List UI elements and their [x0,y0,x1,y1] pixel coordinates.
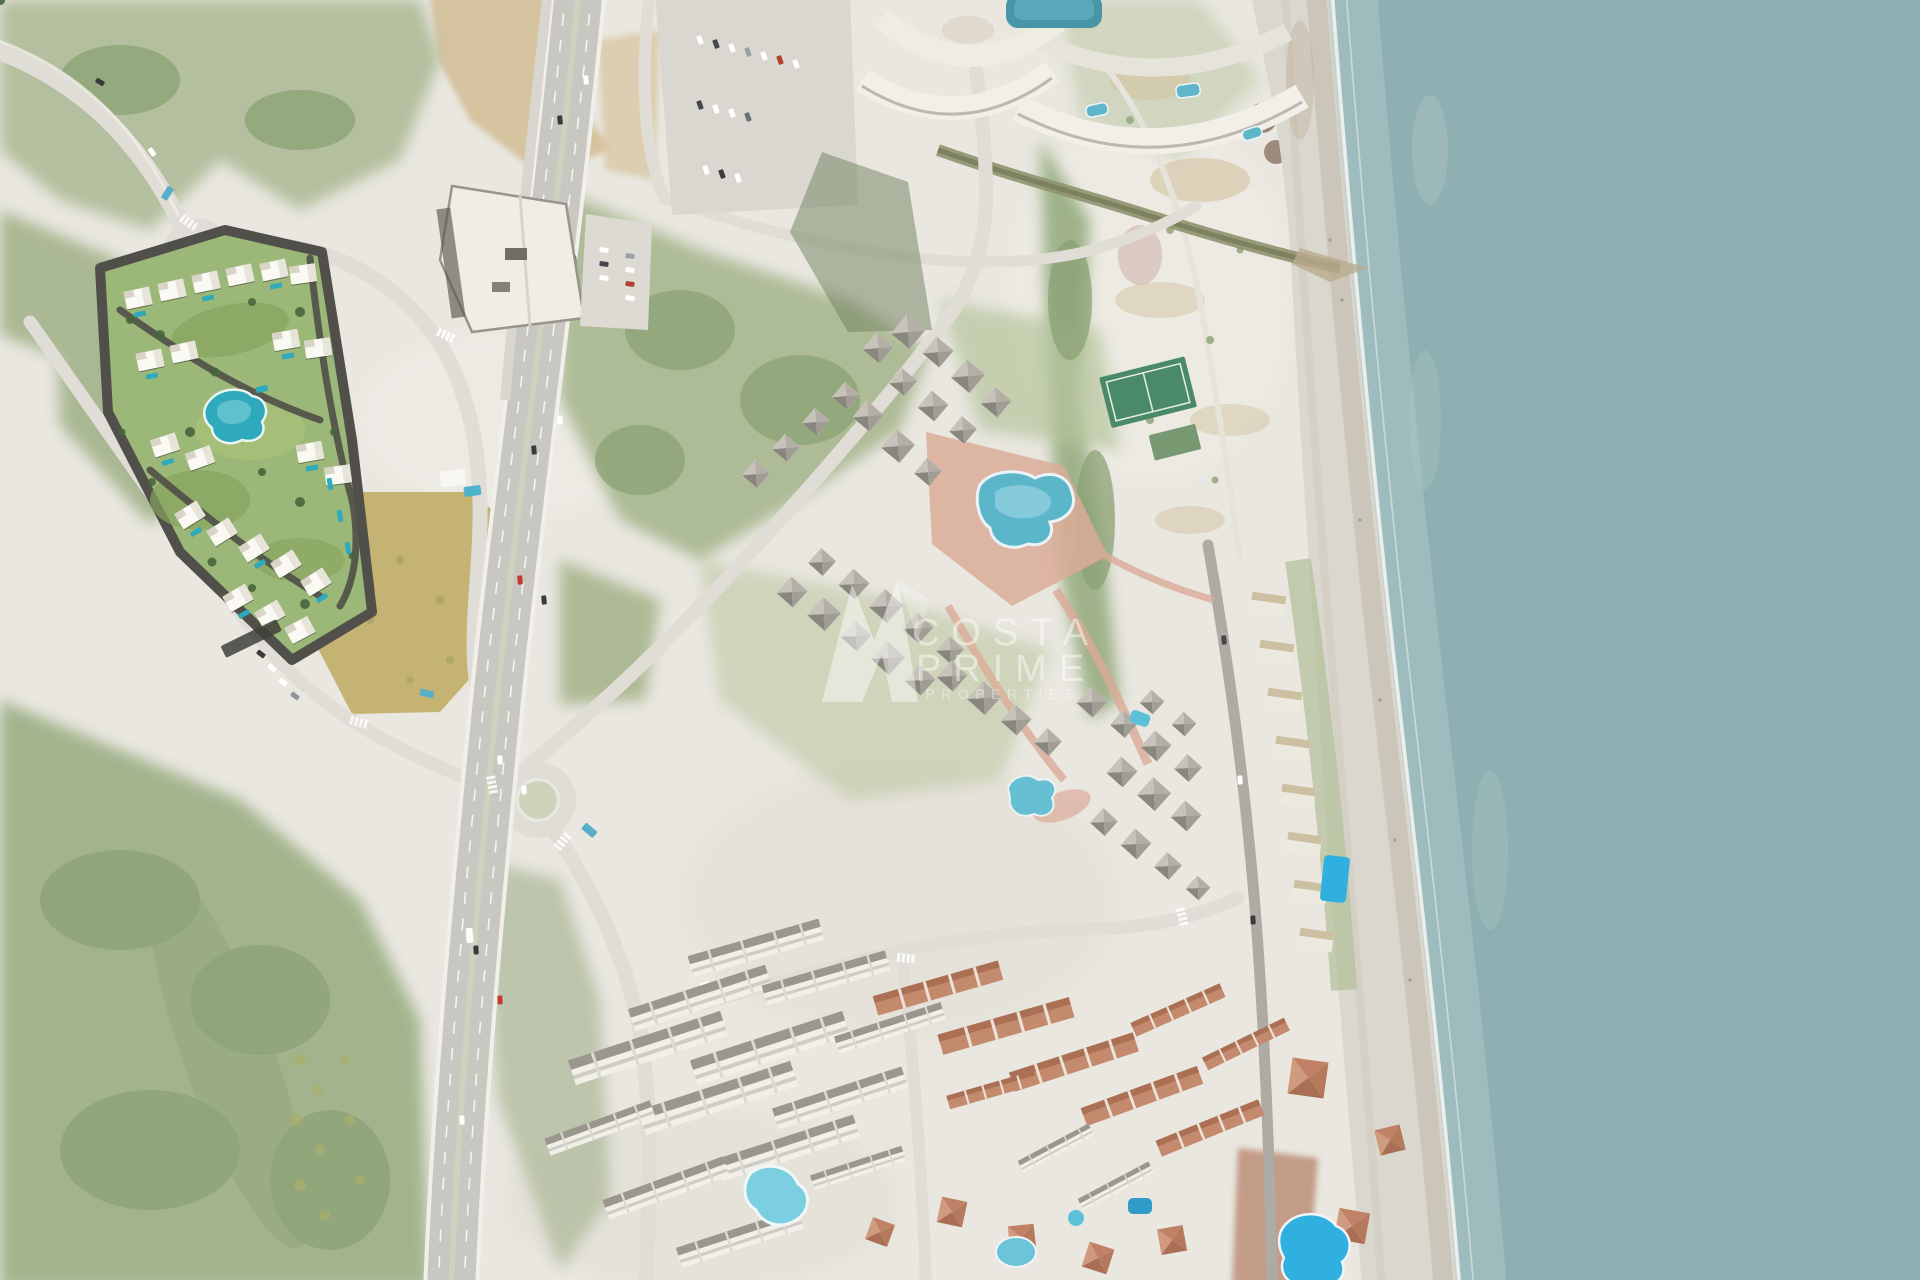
communal-pool-northeast [1006,0,1102,28]
resort-small-pool [1008,776,1055,816]
commercial-building [436,186,584,332]
watermark-line3: PROPERTIES [926,686,1081,702]
aerial-map-image: COSTA PRIME PROPERTIES [0,0,1920,1280]
beachfront-lap-pool [1320,855,1351,903]
development-lagoon-pool [204,390,266,444]
watermark-line2: PRIME [916,648,1096,690]
commercial-parking [580,214,652,330]
